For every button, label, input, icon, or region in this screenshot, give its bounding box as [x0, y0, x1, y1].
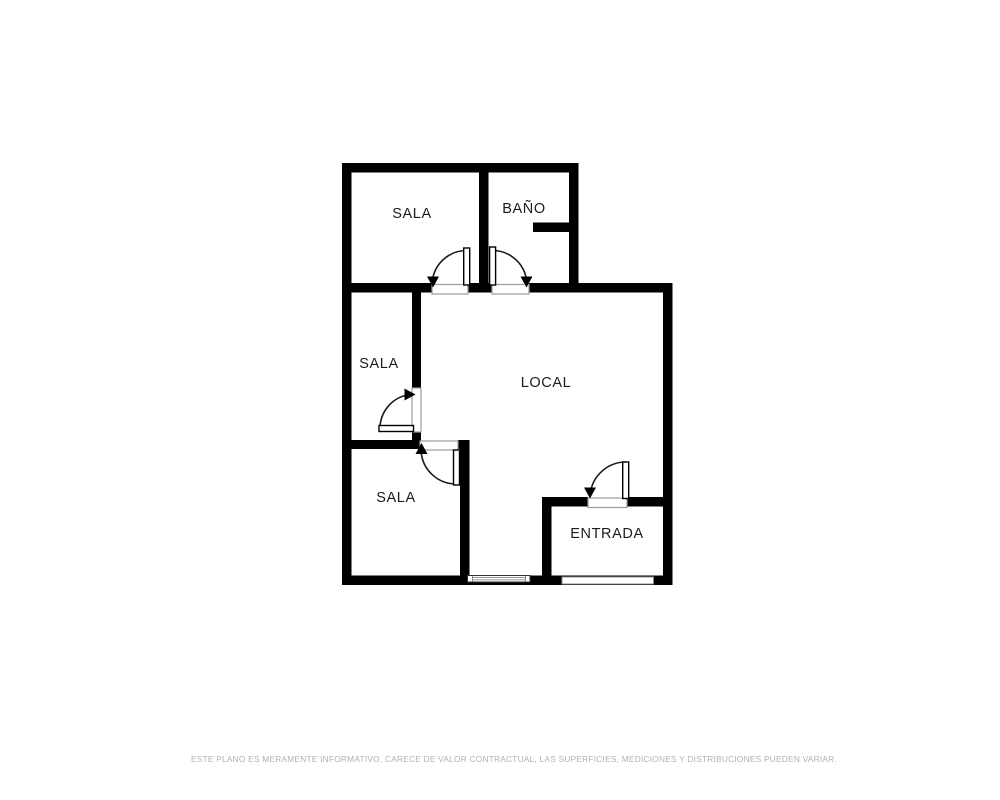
wall-sala-mid-right-up	[412, 292, 421, 388]
door-swing-arc	[380, 395, 411, 429]
window-local-bottom	[468, 576, 531, 583]
wall-outer-top	[342, 163, 579, 173]
wall-entrada-top-left	[542, 497, 588, 507]
door-leaf	[379, 426, 414, 432]
walls	[342, 163, 673, 585]
wall-sala-bottom-right	[460, 440, 470, 585]
room-label-sala-middle: SALA	[359, 356, 398, 372]
wall-bano-right	[569, 163, 579, 293]
wall-outer-left	[342, 163, 352, 585]
door-entrada	[584, 462, 629, 508]
window-sill	[562, 577, 654, 584]
room-label-sala-top: SALA	[392, 206, 431, 222]
door-leaf	[623, 462, 629, 499]
door-threshold	[420, 441, 458, 450]
door-swing-arrow	[584, 488, 596, 499]
wall-bano-stub	[533, 223, 569, 233]
door-leaf	[464, 248, 470, 285]
floorplan-drawing: SALA BAÑO SALA LOCAL SALA ENTRADA ESTE P…	[0, 0, 1000, 800]
wall-local-top-mid	[468, 283, 492, 293]
room-label-sala-bottom: SALA	[376, 490, 415, 506]
wall-local-top-left	[342, 283, 432, 293]
door-sala-bottom	[416, 441, 460, 485]
wall-sala-bano-divider	[479, 163, 489, 293]
door-sala-top	[427, 248, 470, 294]
window-frame	[468, 576, 531, 583]
door-leaf	[490, 247, 496, 285]
door-threshold	[492, 285, 529, 295]
wall-sala-divider-left	[342, 440, 420, 449]
wall-local-top-right	[529, 283, 673, 293]
door-leaf	[454, 450, 460, 485]
door-sala-middle	[379, 388, 421, 432]
room-label-local: LOCAL	[521, 375, 572, 391]
door-swing-arc	[421, 453, 456, 485]
door-swing-arc	[433, 250, 467, 278]
door-swing-arc	[493, 251, 527, 278]
room-label-bano: BAÑO	[502, 200, 546, 217]
wall-entrada-left	[542, 497, 552, 585]
wall-entrada-top-right	[627, 497, 673, 507]
door-swing-arc	[590, 462, 626, 494]
wall-outer-right	[663, 283, 673, 585]
window-entrada-bottom	[562, 577, 654, 584]
door-threshold	[432, 285, 468, 295]
floorplan-page: SALA BAÑO SALA LOCAL SALA ENTRADA ESTE P…	[0, 0, 1000, 800]
door-bano	[490, 247, 533, 294]
door-threshold	[588, 498, 627, 508]
room-label-entrada: ENTRADA	[570, 526, 644, 542]
disclaimer-text: ESTE PLANO ES MERAMENTE INFORMATIVO, CAR…	[191, 754, 837, 764]
